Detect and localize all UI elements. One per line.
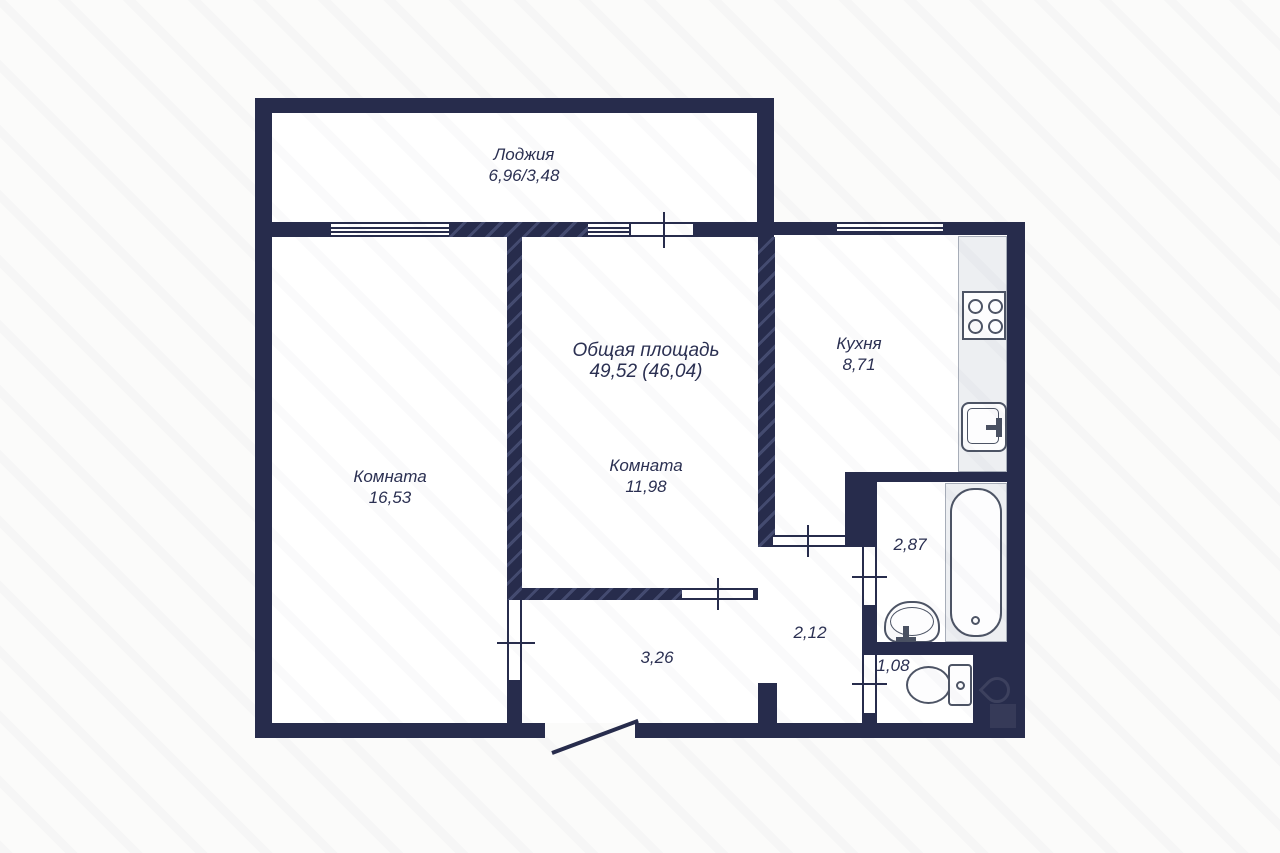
room-area: 16,53: [290, 487, 490, 508]
bathroom-label: 2,87: [870, 534, 950, 555]
door-tick: [852, 576, 887, 578]
floor-plan: Лоджия 6,96/3,48 Комната 16,53 Общая пло…: [0, 0, 1280, 853]
room-area: 3,26: [617, 647, 697, 668]
window: [588, 222, 629, 237]
total-area-label: Общая площадь 49,52 (46,04): [536, 340, 756, 382]
door-tick: [807, 525, 809, 557]
door-tick: [497, 642, 535, 644]
wall-hatched: [522, 588, 682, 600]
door-opening: [773, 535, 845, 547]
stove-burner-icon: [968, 299, 983, 314]
door-tick: [663, 212, 665, 248]
bathtub: [950, 488, 1002, 637]
window: [837, 222, 943, 235]
wall: [255, 98, 774, 113]
wall: [695, 222, 757, 237]
room-area: 8,71: [799, 354, 919, 375]
kitchen-stove: [962, 291, 1006, 340]
room-area: 2,87: [870, 534, 950, 555]
toilet-tank: [948, 664, 972, 706]
room-name: Лоджия: [424, 144, 624, 165]
wall: [507, 680, 522, 723]
toilet-flush-icon: [956, 681, 965, 690]
watermark-glyph: [990, 704, 1016, 728]
entrance-door-leaf: [551, 719, 639, 755]
stove-burner-icon: [988, 319, 1003, 334]
room-left-label: Комната 16,53: [290, 466, 490, 508]
total-area-value: 49,52 (46,04): [536, 361, 756, 382]
wall: [877, 472, 1007, 482]
room-name: Комната: [290, 466, 490, 487]
hallway-label: 3,26: [617, 647, 697, 668]
room-area: 1,08: [858, 655, 928, 676]
door-tick: [852, 683, 887, 685]
bathroom-sink-basin: [890, 607, 934, 636]
door-tick: [717, 578, 719, 610]
wall: [757, 98, 774, 237]
wall: [255, 98, 272, 738]
wall: [272, 222, 331, 237]
wall: [753, 588, 758, 600]
balcony-door: [629, 222, 695, 237]
room-middle-label: Комната 11,98: [546, 455, 746, 497]
room-area: 11,98: [546, 476, 746, 497]
window: [331, 222, 449, 237]
bathtub-drain-icon: [971, 616, 980, 625]
wall: [862, 605, 877, 642]
room-area: 6,96/3,48: [424, 165, 624, 186]
wall-hatched: [449, 222, 588, 237]
wall: [255, 723, 545, 738]
wall: [774, 222, 837, 235]
kitchen-label: Кухня 8,71: [799, 333, 919, 375]
wall-hatched: [758, 237, 775, 547]
room-name: Кухня: [799, 333, 919, 354]
stove-burner-icon: [968, 319, 983, 334]
wall: [758, 683, 777, 723]
room-area: 2,12: [770, 622, 850, 643]
total-area-title: Общая площадь: [536, 340, 756, 361]
corridor-label: 2,12: [770, 622, 850, 643]
wall: [635, 723, 1025, 738]
wall-hatched: [507, 237, 522, 600]
room-name: Комната: [546, 455, 746, 476]
wall: [862, 713, 877, 723]
wc-label: 1,08: [858, 655, 928, 676]
door-opening: [507, 600, 522, 680]
kitchen-sink: [961, 402, 1007, 452]
loggia-label: Лоджия 6,96/3,48: [424, 144, 624, 186]
kitchen-faucet-icon: [986, 425, 997, 430]
stove-burner-icon: [988, 299, 1003, 314]
